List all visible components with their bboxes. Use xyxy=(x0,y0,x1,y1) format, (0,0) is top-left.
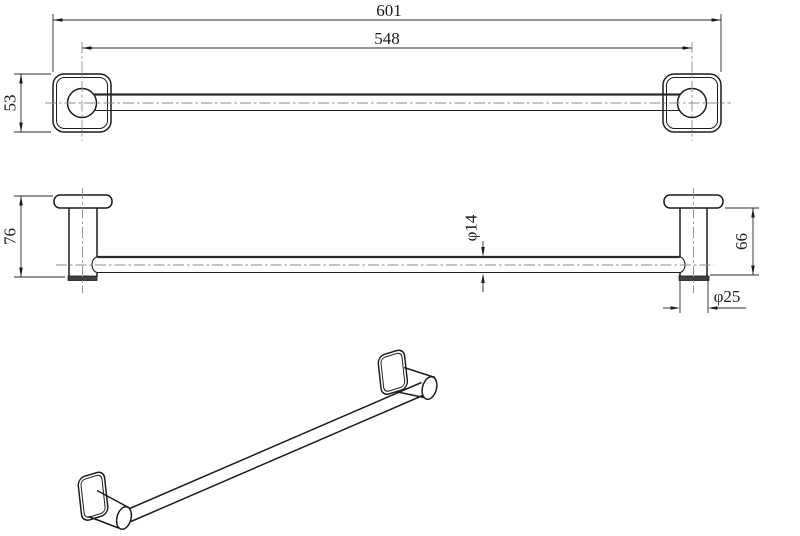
dim-phi25-label: φ25 xyxy=(714,287,741,306)
arrow-up xyxy=(481,274,485,284)
side-view: 76 φ14 66 φ25 xyxy=(1,188,760,313)
iso-left-plate-inner xyxy=(80,474,105,518)
bar-front xyxy=(94,95,681,111)
arrow-left xyxy=(53,18,63,22)
dim-total-projection: 76 xyxy=(1,196,66,277)
dim-53-label: 53 xyxy=(1,95,20,112)
arrow-down xyxy=(751,266,755,276)
arrow-right xyxy=(683,46,693,50)
iso-bar xyxy=(128,383,426,522)
right-base xyxy=(679,276,709,281)
iso-left-plate xyxy=(78,470,109,522)
iso-right-plate xyxy=(378,348,409,396)
front-centerlines xyxy=(45,42,731,141)
side-centerlines xyxy=(56,188,714,293)
arrow-left xyxy=(708,306,718,310)
dim-601-label: 601 xyxy=(376,1,402,20)
dim-center-distance: 548 xyxy=(82,29,692,50)
iso-right-plate-inner xyxy=(380,352,405,393)
dim-plate-to-tip: 66 xyxy=(710,208,759,275)
front-view: 601 548 53 xyxy=(1,1,732,141)
left-cap xyxy=(54,195,112,208)
dim-548-label: 548 xyxy=(374,29,400,48)
arrow-down xyxy=(481,247,485,257)
arrow-up xyxy=(19,196,23,206)
dim-plate-size: 53 xyxy=(1,74,52,132)
arrow-up xyxy=(19,74,23,84)
dim-bar-diameter: φ14 xyxy=(462,214,485,292)
arrow-right xyxy=(712,18,722,22)
arrow-down xyxy=(19,268,23,278)
technical-drawing: 601 548 53 xyxy=(0,0,800,536)
dim-66-label: 66 xyxy=(732,233,751,250)
dim-76-label: 76 xyxy=(1,228,20,245)
arrow-right xyxy=(671,306,681,310)
arrow-left xyxy=(82,46,92,50)
dim-post-diameter: φ25 xyxy=(663,281,746,313)
isometric-view xyxy=(78,348,440,531)
arrow-up xyxy=(751,208,755,218)
dim-phi14-label: φ14 xyxy=(462,214,481,241)
arrow-down xyxy=(19,123,23,133)
left-post-side xyxy=(54,195,112,281)
